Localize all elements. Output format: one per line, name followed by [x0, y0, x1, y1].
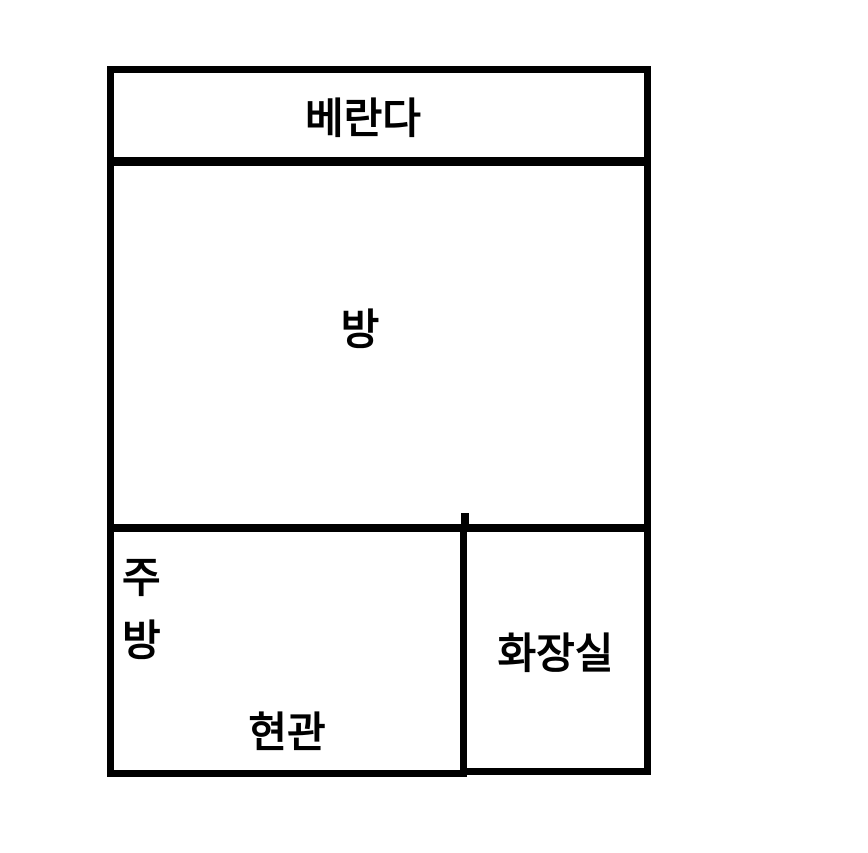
kitchen-label: 주 방	[122, 546, 161, 672]
floorplan: 베란다 방 주 방 현관 화장실	[0, 0, 868, 853]
kitchen-label-line1: 주	[122, 546, 161, 609]
veranda-label: 베란다	[305, 85, 421, 146]
kitchen-label-line2: 방	[122, 609, 161, 672]
room-main: 방	[107, 159, 651, 531]
bathroom-label: 화장실	[498, 620, 614, 681]
room-bathroom: 화장실	[460, 525, 651, 775]
main-room-label: 방	[341, 296, 380, 357]
room-veranda: 베란다	[107, 66, 651, 164]
room-kitchen-entrance: 주 방 현관	[107, 525, 467, 777]
entrance-label: 현관	[114, 699, 460, 760]
wall-joint-tick	[461, 513, 469, 529]
